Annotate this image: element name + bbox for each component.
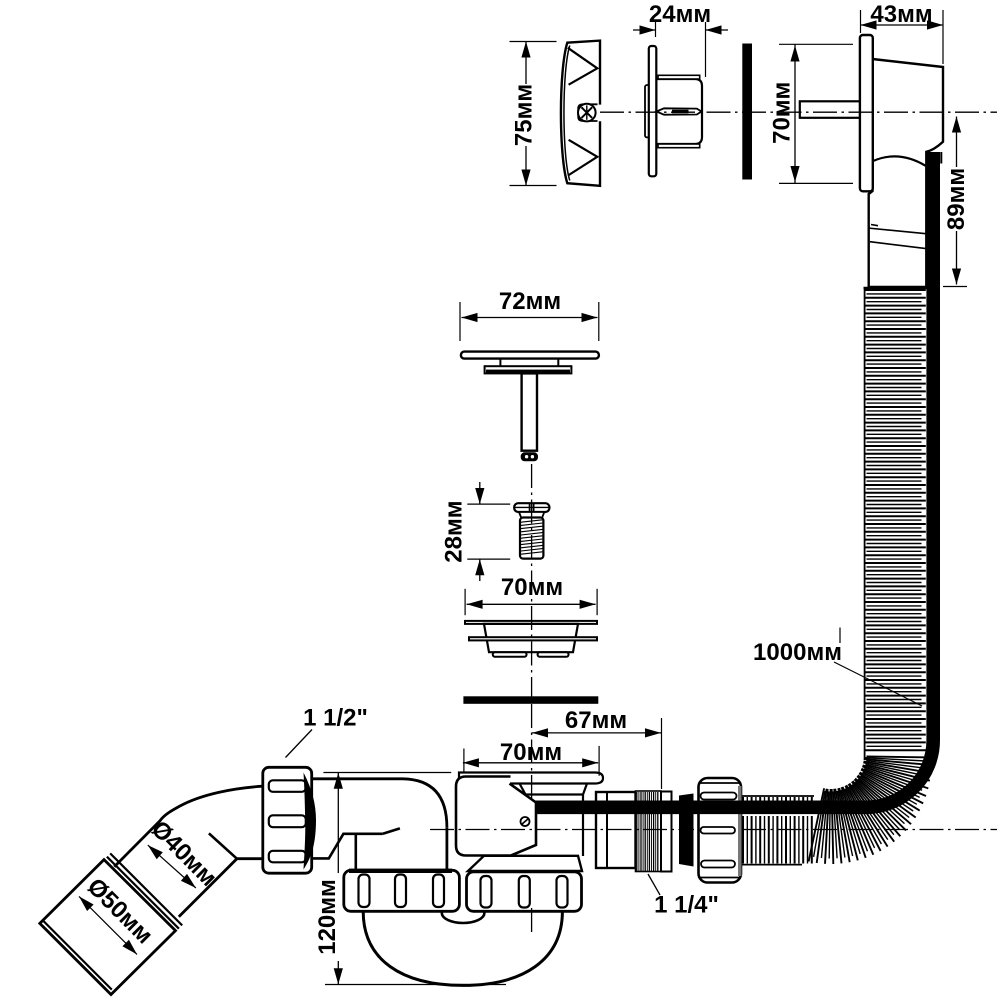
svg-text:1000мм: 1000мм [753,639,842,666]
svg-text:75мм: 75мм [510,84,537,146]
svg-text:1 1/2": 1 1/2" [303,705,368,732]
svg-text:1 1/4": 1 1/4" [654,892,719,919]
svg-text:72мм: 72мм [499,288,561,315]
svg-text:67мм: 67мм [565,707,627,734]
svg-text:89мм: 89мм [943,168,970,230]
svg-text:28мм: 28мм [440,500,467,562]
svg-text:24мм: 24мм [649,1,711,28]
svg-text:120мм: 120мм [314,879,341,955]
svg-text:43мм: 43мм [870,1,932,28]
